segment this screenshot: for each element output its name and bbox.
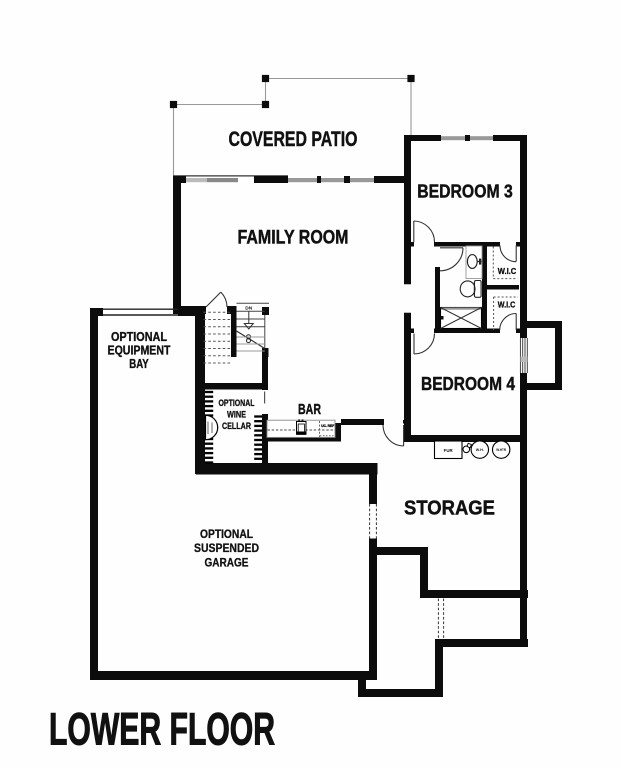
svg-text:EQUIPMENT: EQUIPMENT bbox=[108, 344, 171, 358]
svg-text:DN: DN bbox=[245, 306, 252, 311]
svg-text:W.H.: W.H. bbox=[476, 448, 484, 452]
svg-text:UC. REF: UC. REF bbox=[321, 424, 335, 428]
svg-text:SUSPENDED: SUSPENDED bbox=[194, 541, 259, 555]
svg-text:BEDROOM 4: BEDROOM 4 bbox=[421, 374, 515, 394]
svg-text:COVERED PATIO: COVERED PATIO bbox=[229, 128, 358, 151]
svg-text:CELLAR: CELLAR bbox=[222, 421, 251, 432]
svg-text:W.HTR: W.HTR bbox=[496, 448, 507, 452]
svg-text:STORAGE: STORAGE bbox=[404, 498, 495, 520]
svg-text:FAMILY ROOM: FAMILY ROOM bbox=[238, 228, 349, 249]
svg-text:GARAGE: GARAGE bbox=[205, 556, 249, 570]
svg-text:OPTIONAL: OPTIONAL bbox=[111, 330, 167, 344]
svg-text:BAY: BAY bbox=[129, 357, 149, 371]
svg-text:BEDROOM 3: BEDROOM 3 bbox=[417, 182, 513, 202]
svg-text:W.I.C: W.I.C bbox=[498, 300, 516, 309]
svg-text:FUR: FUR bbox=[444, 448, 453, 453]
svg-text:OPTIONAL: OPTIONAL bbox=[200, 527, 253, 541]
svg-text:WINE: WINE bbox=[227, 410, 246, 421]
svg-text:OPTIONAL: OPTIONAL bbox=[219, 398, 255, 409]
svg-text:W.I.C: W.I.C bbox=[498, 267, 517, 276]
svg-text:BAR: BAR bbox=[298, 402, 321, 418]
svg-text:LOWER FLOOR: LOWER FLOOR bbox=[49, 704, 275, 755]
